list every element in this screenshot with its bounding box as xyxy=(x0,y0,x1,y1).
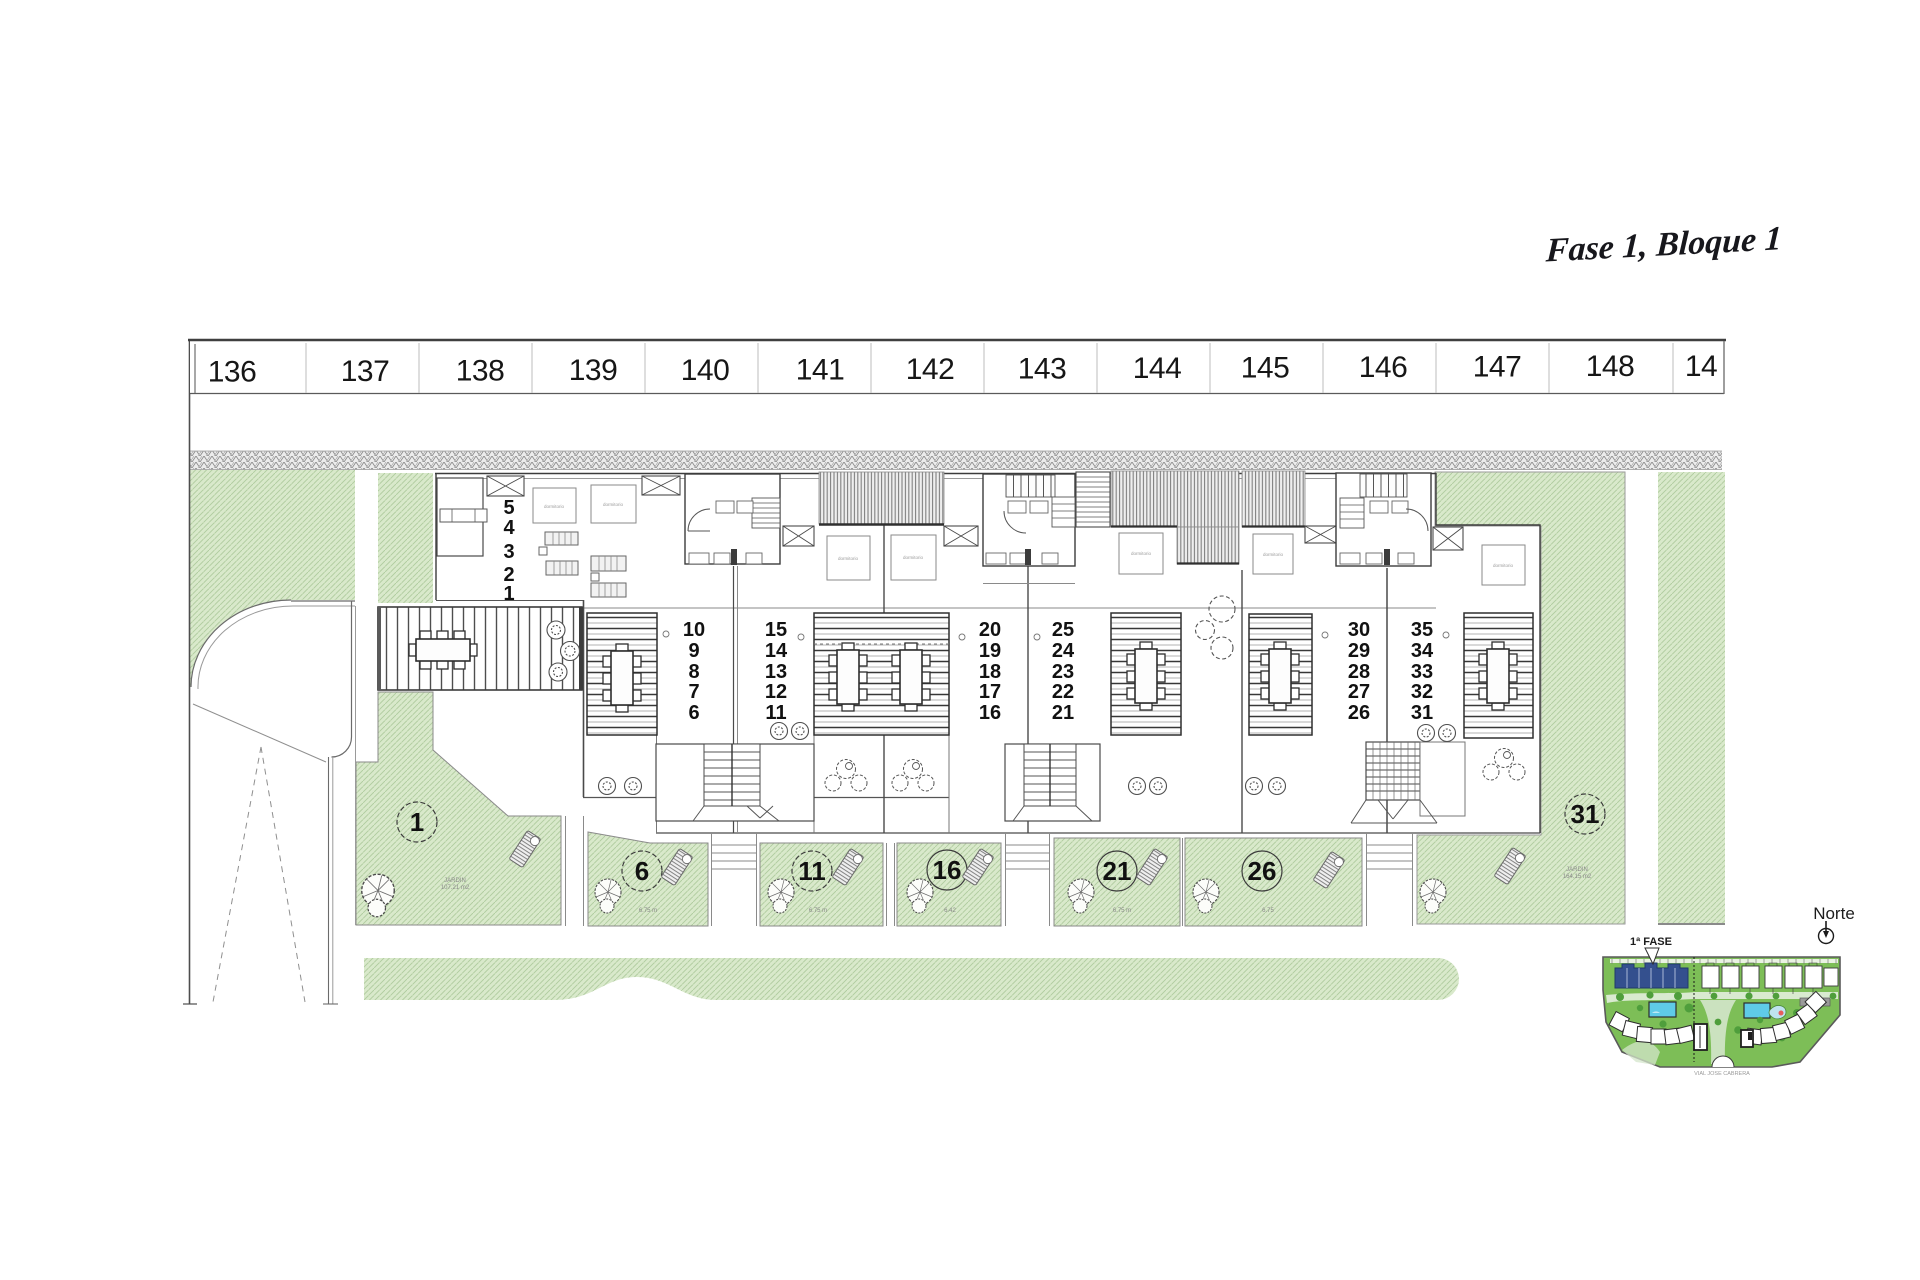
svg-text:27: 27 xyxy=(1348,681,1370,703)
svg-text:143: 143 xyxy=(1018,353,1067,386)
svg-text:14: 14 xyxy=(1685,350,1717,383)
svg-text:146: 146 xyxy=(1359,351,1408,384)
svg-text:142: 142 xyxy=(906,353,955,386)
svg-text:6.75 m: 6.75 m xyxy=(1113,908,1131,914)
svg-text:JARDIN: JARDIN xyxy=(1566,867,1588,873)
svg-text:7: 7 xyxy=(688,681,699,703)
svg-text:VIAL JOSE CABRERA: VIAL JOSE CABRERA xyxy=(1694,1071,1750,1077)
svg-text:15: 15 xyxy=(765,619,787,641)
svg-text:dormitorio: dormitorio xyxy=(544,504,565,509)
svg-text:dormitorio: dormitorio xyxy=(603,502,624,507)
svg-text:11: 11 xyxy=(798,856,826,886)
svg-text:6.75: 6.75 xyxy=(1262,908,1274,914)
svg-text:22: 22 xyxy=(1052,681,1074,703)
svg-text:18: 18 xyxy=(979,661,1001,683)
svg-text:12: 12 xyxy=(765,681,787,703)
svg-text:6.75 m: 6.75 m xyxy=(639,908,657,914)
svg-text:138: 138 xyxy=(456,355,505,388)
svg-text:144: 144 xyxy=(1133,352,1182,385)
svg-text:Norte: Norte xyxy=(1813,904,1855,923)
svg-text:10: 10 xyxy=(683,619,705,641)
svg-text:31: 31 xyxy=(1571,799,1600,829)
svg-text:29: 29 xyxy=(1348,640,1370,662)
svg-text:14: 14 xyxy=(765,640,788,662)
svg-text:34: 34 xyxy=(1411,640,1434,662)
svg-text:1: 1 xyxy=(503,583,514,605)
svg-text:16: 16 xyxy=(979,702,1001,724)
svg-text:1: 1 xyxy=(410,807,424,837)
svg-text:13: 13 xyxy=(765,661,787,683)
svg-text:25: 25 xyxy=(1052,619,1074,641)
svg-text:1ª FASE: 1ª FASE xyxy=(1630,936,1672,948)
svg-text:17: 17 xyxy=(979,681,1001,703)
svg-text:139: 139 xyxy=(569,354,618,387)
svg-text:19: 19 xyxy=(979,640,1001,662)
svg-text:145: 145 xyxy=(1241,352,1290,385)
svg-text:33: 33 xyxy=(1411,661,1433,683)
svg-text:136: 136 xyxy=(208,356,257,389)
svg-text:30: 30 xyxy=(1348,619,1370,641)
svg-text:5: 5 xyxy=(503,497,514,519)
svg-text:26: 26 xyxy=(1248,856,1277,886)
svg-text:28: 28 xyxy=(1348,661,1370,683)
svg-text:dormitorio: dormitorio xyxy=(838,556,859,561)
svg-text:4: 4 xyxy=(503,517,515,539)
svg-text:3: 3 xyxy=(503,541,514,563)
svg-text:141: 141 xyxy=(796,354,845,387)
svg-text:dormitorio: dormitorio xyxy=(1493,563,1514,568)
svg-text:11: 11 xyxy=(765,702,786,724)
svg-text:9: 9 xyxy=(688,640,699,662)
svg-text:164.15 m2: 164.15 m2 xyxy=(1563,874,1592,880)
svg-text:147: 147 xyxy=(1473,351,1522,384)
svg-text:21: 21 xyxy=(1052,702,1074,724)
svg-text:6.75 m: 6.75 m xyxy=(809,908,827,914)
svg-text:137: 137 xyxy=(341,355,390,388)
svg-text:JARDIN: JARDIN xyxy=(444,878,466,884)
svg-text:6: 6 xyxy=(635,856,649,886)
svg-text:16: 16 xyxy=(933,855,962,885)
svg-text:24: 24 xyxy=(1052,640,1075,662)
svg-text:23: 23 xyxy=(1052,661,1074,683)
svg-text:32: 32 xyxy=(1411,681,1433,703)
svg-text:107.21 m2: 107.21 m2 xyxy=(441,885,470,891)
svg-text:35: 35 xyxy=(1411,619,1433,641)
svg-text:140: 140 xyxy=(681,354,730,387)
svg-text:148: 148 xyxy=(1586,350,1635,383)
svg-text:31: 31 xyxy=(1411,702,1433,724)
svg-text:26: 26 xyxy=(1348,702,1370,724)
svg-text:21: 21 xyxy=(1103,856,1132,886)
svg-text:dormitorio: dormitorio xyxy=(1263,552,1284,557)
svg-text:6: 6 xyxy=(688,702,699,724)
svg-text:6.42: 6.42 xyxy=(944,908,956,914)
svg-text:dormitorio: dormitorio xyxy=(903,555,924,560)
svg-text:20: 20 xyxy=(979,619,1001,641)
svg-text:8: 8 xyxy=(688,661,699,683)
svg-text:dormitorio: dormitorio xyxy=(1131,551,1152,556)
